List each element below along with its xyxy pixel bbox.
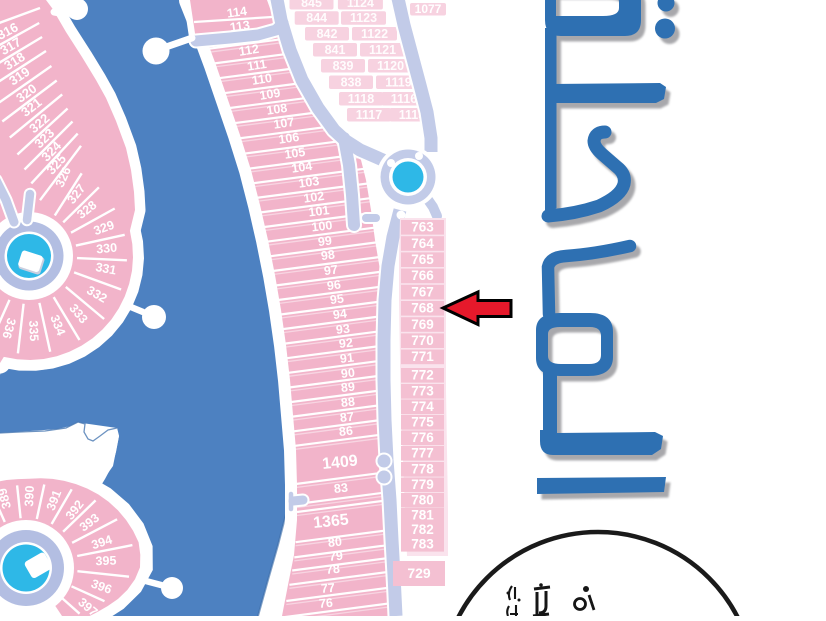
svg-text:771: 771 [411, 349, 434, 364]
svg-text:89: 89 [340, 380, 355, 395]
svg-text:1120: 1120 [377, 59, 404, 73]
svg-text:77: 77 [320, 581, 335, 596]
svg-text:94: 94 [332, 307, 348, 323]
svg-text:330: 330 [96, 241, 118, 257]
svg-text:775: 775 [411, 415, 434, 430]
svg-text:99: 99 [317, 234, 333, 250]
svg-text:1123: 1123 [350, 11, 377, 25]
svg-text:776: 776 [411, 430, 434, 445]
svg-text:95: 95 [329, 292, 345, 308]
svg-text:83: 83 [333, 481, 348, 496]
svg-text:769: 769 [411, 317, 434, 332]
svg-text:781: 781 [411, 508, 434, 523]
svg-text:1122: 1122 [361, 27, 388, 41]
svg-text:1117: 1117 [356, 108, 382, 122]
svg-text:778: 778 [411, 462, 434, 477]
svg-text:90: 90 [340, 366, 355, 381]
svg-text:390: 390 [22, 485, 37, 507]
svg-text:770: 770 [411, 333, 434, 348]
svg-text:97: 97 [323, 263, 339, 279]
svg-text:780: 780 [411, 493, 434, 508]
svg-text:1119: 1119 [385, 75, 411, 89]
svg-text:838: 838 [341, 75, 362, 89]
svg-text:1077: 1077 [415, 2, 442, 16]
svg-text:841: 841 [325, 43, 346, 57]
svg-text:763: 763 [411, 220, 434, 235]
svg-text:1124: 1124 [347, 0, 374, 10]
svg-text:1121: 1121 [369, 43, 396, 57]
svg-text:766: 766 [411, 268, 434, 283]
svg-text:729: 729 [407, 565, 431, 581]
svg-text:107: 107 [273, 115, 296, 132]
svg-text:844: 844 [306, 11, 327, 25]
svg-text:335: 335 [26, 320, 41, 342]
svg-text:783: 783 [411, 537, 434, 552]
svg-text:774: 774 [411, 399, 434, 414]
svg-text:88: 88 [340, 395, 355, 410]
svg-text:779: 779 [411, 477, 434, 492]
svg-text:101: 101 [308, 203, 330, 219]
svg-text:782: 782 [411, 522, 434, 537]
svg-text:104: 104 [291, 159, 314, 176]
svg-text:103: 103 [298, 174, 321, 191]
svg-text:86: 86 [338, 424, 353, 439]
svg-text:106: 106 [278, 130, 301, 147]
svg-text:91: 91 [339, 351, 354, 366]
svg-text:842: 842 [317, 27, 338, 41]
svg-text:100: 100 [311, 218, 333, 234]
svg-text:80: 80 [327, 535, 342, 550]
svg-text:845: 845 [301, 0, 322, 10]
svg-text:1118: 1118 [348, 92, 374, 106]
svg-text:839: 839 [333, 59, 354, 73]
svg-text:1116: 1116 [391, 92, 417, 106]
svg-text:87: 87 [339, 410, 354, 425]
svg-text:765: 765 [411, 252, 434, 267]
svg-text:96: 96 [326, 278, 342, 294]
svg-text:764: 764 [411, 236, 434, 251]
svg-text:777: 777 [411, 446, 434, 461]
svg-text:773: 773 [411, 384, 434, 399]
svg-text:395: 395 [95, 554, 116, 569]
svg-text:92: 92 [338, 336, 353, 351]
svg-text:93: 93 [335, 322, 350, 337]
svg-text:772: 772 [411, 368, 434, 383]
svg-text:76: 76 [318, 596, 333, 611]
svg-text:78: 78 [325, 562, 340, 577]
svg-text:768: 768 [411, 301, 434, 316]
svg-text:767: 767 [411, 284, 434, 299]
svg-text:98: 98 [320, 248, 336, 264]
